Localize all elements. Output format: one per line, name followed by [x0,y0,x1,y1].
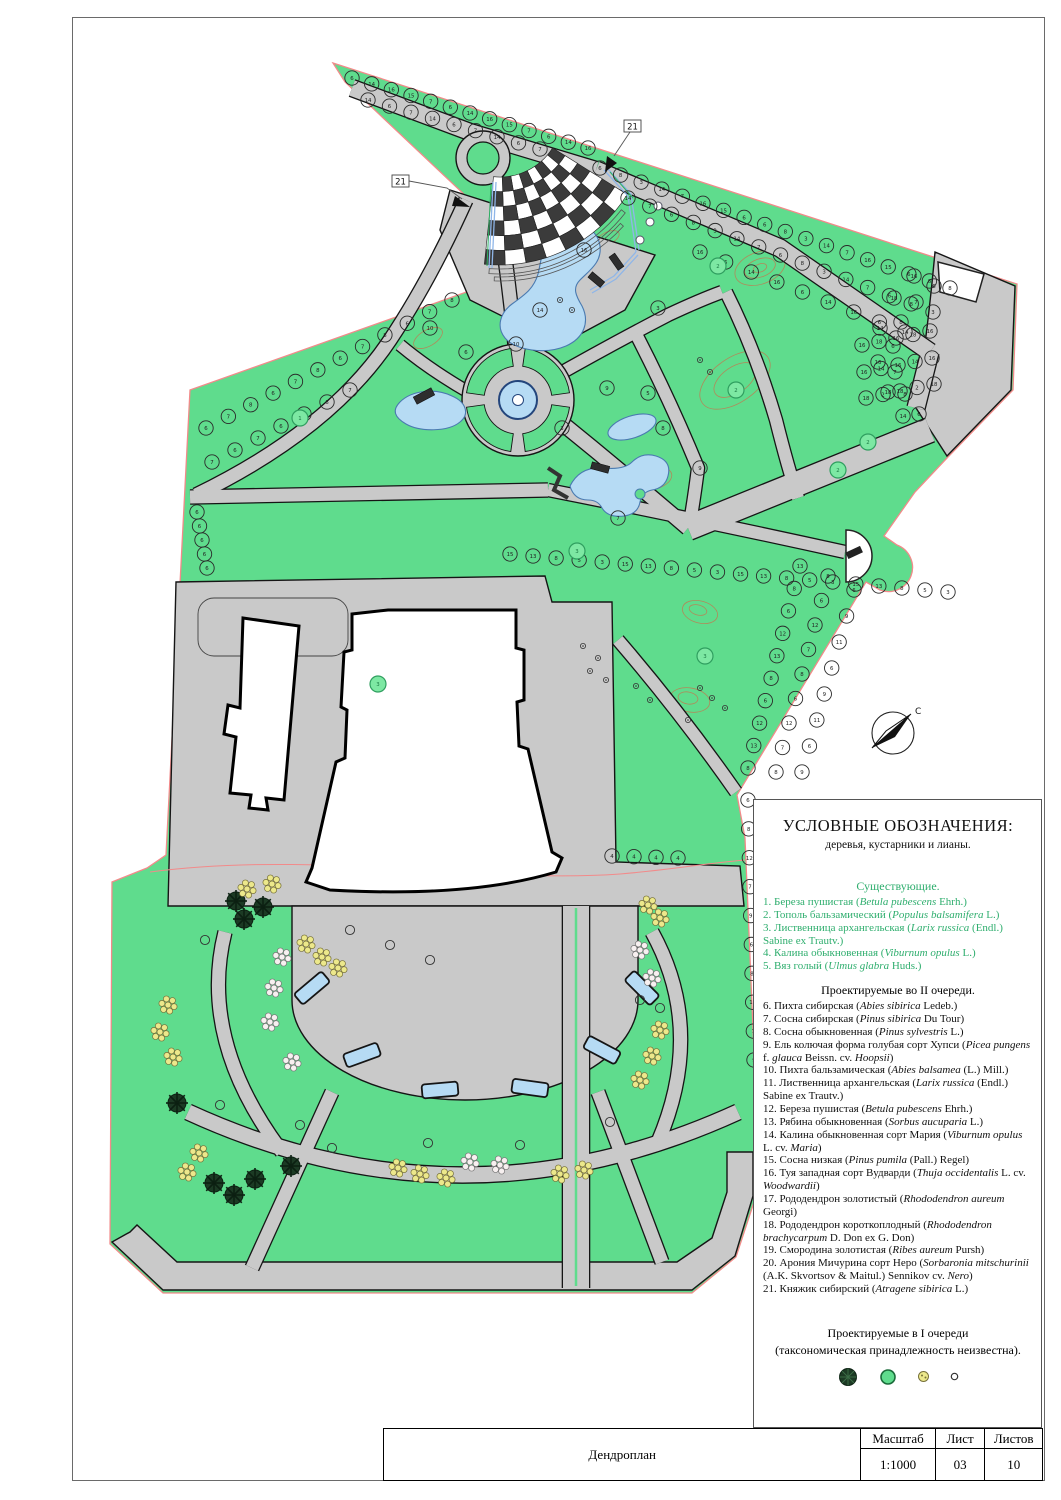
dark-shrub-symbol [223,1184,245,1206]
amphitheater-cell [503,205,518,221]
svg-text:7: 7 [681,194,684,200]
svg-text:14: 14 [842,277,849,283]
svg-text:3: 3 [376,682,379,688]
svg-text:4: 4 [632,855,636,861]
svg-text:16: 16 [895,363,902,369]
svg-text:8: 8 [774,770,778,776]
svg-text:10: 10 [513,342,520,348]
legend-item: 11. Лиственница архангельская (Larix rus… [763,1077,1033,1103]
legend-panel: УСЛОВНЫЕ ОБОЗНАЧЕНИЯ: деревья, кустарник… [753,799,1042,1428]
svg-text:8: 8 [909,302,913,308]
svg-text:8: 8 [784,230,788,236]
svg-text:6: 6 [830,666,834,672]
svg-text:7: 7 [648,204,651,210]
legend-item: 6. Пихта сибирская (Abies sibirica Ledeb… [763,1000,1033,1013]
svg-text:7: 7 [807,648,810,654]
svg-text:8: 8 [692,220,696,226]
svg-text:7: 7 [757,245,760,251]
legend-item: 5. Вяз голый (Ulmus glabra Huds.) [763,960,1033,973]
title-block: Дендроплан Масштаб 1:1000 Лист 03 Листов… [383,1428,1043,1481]
svg-text:18: 18 [876,340,883,346]
svg-text:11: 11 [813,718,820,724]
svg-text:3: 3 [560,426,563,432]
tree-symbol: 3 [941,585,955,599]
svg-text:16: 16 [861,370,868,376]
svg-text:7: 7 [866,286,869,292]
svg-text:5: 5 [693,568,696,574]
svg-text:8: 8 [619,173,623,179]
svg-text:12: 12 [746,856,753,862]
svg-text:2: 2 [836,468,839,474]
svg-text:3: 3 [713,229,716,235]
svg-text:3: 3 [931,310,934,316]
svg-text:14: 14 [365,98,372,104]
svg-text:15: 15 [885,265,892,271]
svg-text:6: 6 [233,448,237,454]
svg-text:6: 6 [932,284,936,290]
main-building [306,610,562,892]
svg-text:16: 16 [700,201,707,207]
svg-text:7: 7 [538,147,541,153]
svg-text:16: 16 [773,280,780,286]
svg-text:18: 18 [891,296,898,302]
svg-text:15: 15 [507,552,514,558]
tree-symbol: 2 [830,462,846,478]
svg-text:6: 6 [464,350,468,356]
svg-text:8: 8 [747,827,751,833]
sheet-column: Лист 03 [936,1429,986,1480]
svg-text:16: 16 [911,274,918,280]
svg-text:9: 9 [800,770,804,776]
fountain-jet [513,395,524,406]
svg-text:9: 9 [605,386,609,392]
svg-text:8: 8 [670,566,674,572]
legend-item: 12. Береза пушистая (Betula pubescens Eh… [763,1103,1033,1116]
svg-text:2: 2 [716,264,719,270]
svg-text:6: 6 [271,391,275,397]
scale-label: Масштаб [861,1429,934,1449]
svg-text:9: 9 [845,614,849,620]
svg-text:3: 3 [575,549,578,555]
svg-text:7: 7 [348,388,351,394]
svg-text:18: 18 [931,382,938,388]
sheet-label: Лист [936,1429,985,1449]
green-tree-symbol-icon [879,1368,897,1386]
svg-text:6: 6 [406,321,410,327]
svg-text:13: 13 [750,744,757,750]
svg-text:3: 3 [639,180,642,186]
svg-text:6: 6 [388,104,392,110]
svg-text:2: 2 [866,440,869,446]
svg-text:8: 8 [900,586,904,592]
svg-text:14: 14 [877,326,884,332]
svg-text:3: 3 [656,306,659,312]
callout-label: 21 [395,178,406,188]
tree-symbol: 6 [825,661,839,675]
svg-text:5: 5 [646,391,649,397]
svg-text:16: 16 [927,329,934,335]
svg-text:14: 14 [733,237,740,243]
legend-item: 8. Сосна обыкновенная (Pinus sylvestris … [763,1026,1033,1039]
svg-text:6: 6 [325,400,329,406]
svg-text:7: 7 [914,300,917,306]
svg-text:14: 14 [900,414,907,420]
svg-text:16: 16 [697,250,704,256]
tree-symbol: 9 [795,765,809,779]
svg-text:15: 15 [622,562,629,568]
legend-item: 4. Калина обыкновенная (Viburnum opulus … [763,947,1033,960]
legend-title: УСЛОВНЫЕ ОБОЗНАЧЕНИЯ: [763,816,1033,836]
tree-symbol: 12 [782,716,796,730]
legend-item: 21. Княжик сибирский (Atragene sibirica … [763,1283,1033,1296]
svg-text:8: 8 [899,320,903,326]
svg-text:16: 16 [859,343,866,349]
amphitheater-cell [492,177,503,192]
svg-text:4: 4 [610,854,614,860]
svg-text:7: 7 [428,310,431,316]
svg-text:8: 8 [746,766,750,772]
svg-text:14: 14 [912,360,919,366]
svg-text:6: 6 [449,105,453,111]
legend-item: 10. Пихта бальзамическая (Abies balsamea… [763,1064,1033,1077]
pond-island [635,489,645,499]
svg-text:8: 8 [661,426,665,432]
svg-text:8: 8 [769,676,773,682]
svg-text:16: 16 [864,258,871,264]
svg-text:8: 8 [450,298,454,304]
tree-symbol: 11 [832,635,846,649]
svg-text:3: 3 [946,590,949,596]
svg-text:6: 6 [452,123,456,129]
legend-section-existing: Существующие. [763,879,1033,894]
svg-text:3: 3 [703,654,706,660]
svg-text:9: 9 [698,466,702,472]
tree-symbol: 1 [292,410,308,426]
legend-item: 9. Ель колючая форма голубая сорт Хупси … [763,1039,1033,1065]
tree-symbol: 3 [370,676,386,692]
svg-text:7: 7 [845,251,848,257]
svg-text:2: 2 [734,388,737,394]
svg-text:7: 7 [527,129,530,135]
svg-text:4: 4 [654,855,658,861]
svg-text:6: 6 [917,412,921,418]
tree-symbol: 9 [817,687,831,701]
svg-text:6: 6 [670,212,674,218]
dark-shrub-symbol [203,1172,225,1194]
tree-symbol: 2 [860,434,876,450]
drawing-title: Дендроплан [384,1429,861,1480]
svg-text:6: 6 [204,426,208,432]
svg-text:12: 12 [779,631,786,637]
svg-text:14: 14 [625,196,632,202]
svg-text:13: 13 [760,574,767,580]
legend-item: 1. Береза пушистая (Betula pubescens Ehr… [763,896,1033,909]
legend-item: 15. Сосна низкая (Pinus pumila (Pall.) R… [763,1154,1033,1167]
svg-text:6: 6 [547,134,551,140]
svg-text:6: 6 [598,166,602,172]
tree-symbol: 2 [710,258,726,274]
scale-column: Масштаб 1:1000 [861,1429,935,1480]
svg-text:6: 6 [794,697,798,703]
svg-text:5: 5 [923,588,926,594]
svg-text:6: 6 [350,76,354,82]
svg-text:12: 12 [756,721,763,727]
legend-item: 7. Сосна сибирская (Pinus sibirica Du To… [763,1013,1033,1026]
svg-text:18: 18 [897,389,904,395]
svg-text:6: 6 [338,356,342,362]
svg-text:6: 6 [198,524,202,530]
svg-text:14: 14 [823,244,830,250]
svg-text:2: 2 [915,386,918,392]
svg-text:8: 8 [801,261,805,267]
svg-text:16: 16 [585,146,592,152]
svg-text:14: 14 [537,308,544,314]
svg-text:3: 3 [600,560,603,566]
svg-text:5: 5 [808,578,811,584]
svg-text:14: 14 [658,187,665,193]
svg-text:6: 6 [787,609,791,615]
svg-text:6: 6 [746,798,750,804]
legend-item: 16. Туя западная сорт Вудварди (Thuja oc… [763,1167,1033,1193]
svg-text:16: 16 [893,336,900,342]
svg-text:15: 15 [506,123,513,129]
tree-symbol: 11 [810,713,824,727]
svg-text:14: 14 [878,367,885,373]
svg-text:7: 7 [429,99,432,105]
svg-text:6: 6 [195,510,199,516]
svg-text:13: 13 [797,564,804,570]
svg-text:3: 3 [804,237,807,243]
svg-text:8: 8 [554,556,558,562]
svg-text:6: 6 [763,222,767,228]
scale-value: 1:1000 [861,1449,934,1480]
svg-text:14: 14 [467,111,474,117]
svg-text:6: 6 [205,566,209,572]
svg-text:3: 3 [822,269,825,275]
svg-text:6: 6 [764,699,768,705]
svg-text:14: 14 [565,140,572,146]
svg-text:16: 16 [850,310,857,316]
legend-proposed1-note: (таксономическая принадлежность неизвест… [763,1343,1033,1358]
svg-text:15: 15 [737,572,744,578]
legend-subtitle: деревья, кустарники и лианы. [763,839,1033,851]
svg-text:7: 7 [294,379,297,385]
amphitheater-cell [504,219,521,235]
legend-item: 2. Тополь бальзамический (Populus balsam… [763,909,1033,922]
roundabout-lawn [467,142,499,174]
svg-text:12: 12 [786,721,793,727]
svg-text:6: 6 [742,215,746,221]
sheet-number: 03 [936,1449,985,1480]
svg-text:14: 14 [825,300,832,306]
svg-text:8: 8 [948,286,952,292]
svg-text:3: 3 [716,570,719,576]
svg-text:6: 6 [820,599,824,605]
sheets-column: Листов 10 [985,1429,1042,1480]
amphitheater-cell [503,191,516,207]
dark-shrub-symbol [244,1168,266,1190]
svg-text:7: 7 [748,885,751,891]
dark-shrub-symbol [166,1092,188,1114]
amphitheater-cell [505,248,526,265]
svg-text:8: 8 [785,576,789,582]
svg-text:14: 14 [368,82,375,88]
yellow-shrub-symbol-icon [917,1370,930,1383]
legend-item: 17. Рододендрон золотистый (Rhododendron… [763,1193,1033,1219]
svg-text:6: 6 [852,588,856,594]
svg-text:13: 13 [645,564,652,570]
svg-text:13: 13 [773,654,780,660]
legend-section-proposed1: Проектируемые в I очереди [763,1326,1033,1341]
svg-text:4: 4 [676,856,680,862]
tree-symbol: 3 [697,648,713,664]
flower-bed [421,1081,458,1098]
svg-text:8: 8 [800,672,804,678]
legend-item: 3. Лиственница архангельская (Larix russ… [763,922,1033,948]
legend-section-proposed2: Проектируемые во II очереди. [763,983,1033,998]
small-plant-symbol-icon [950,1372,959,1381]
svg-text:12: 12 [812,623,819,629]
svg-text:6: 6 [200,538,204,544]
svg-text:6: 6 [203,552,207,558]
svg-text:7: 7 [409,110,412,116]
svg-text:18: 18 [885,390,892,396]
svg-text:7: 7 [474,129,477,135]
svg-text:8: 8 [793,586,797,592]
north-label: С [915,707,921,717]
svg-text:6: 6 [517,141,521,147]
svg-text:15: 15 [720,208,727,214]
svg-text:2: 2 [881,393,884,399]
legend-existing-list: 1. Береза пушистая (Betula pubescens Ehr… [763,896,1033,973]
svg-text:14: 14 [429,116,436,122]
svg-text:7: 7 [361,345,364,351]
svg-text:6: 6 [808,744,812,750]
svg-text:16: 16 [929,356,936,362]
dark-shrub-symbol [233,908,255,930]
dark-tree-symbol-icon [837,1366,859,1388]
legend-item: 19. Смородина золотистая (Ribes aureum P… [763,1244,1033,1257]
tree-symbol: 3 [569,543,585,559]
svg-text:16: 16 [581,248,588,254]
svg-text:7: 7 [781,746,784,752]
north-arrow: С [872,707,921,754]
svg-text:6: 6 [779,253,783,259]
tree-symbol: 7 [775,740,789,754]
amphitheater-cell [504,234,523,251]
dark-shrub-symbol [280,1155,302,1177]
svg-text:13: 13 [875,584,882,590]
legend-proposed2-list: 6. Пихта сибирская (Abies sibirica Ledeb… [763,1000,1033,1296]
svg-text:14: 14 [494,135,501,141]
svg-text:7: 7 [616,516,619,522]
svg-text:16: 16 [486,117,493,123]
svg-text:10: 10 [427,326,434,332]
svg-text:18: 18 [910,333,917,339]
svg-text:16: 16 [388,88,395,94]
tree-symbol: 5 [918,583,932,597]
svg-text:8: 8 [383,333,387,339]
dendroplan-sheet: { "colors":{ "green":"#5fdc8d","green-li… [0,0,1061,1500]
tree-symbol: 6 [802,739,816,753]
legend-item: 20. Арония Мичурина сорт Неро (Sorbaroni… [763,1257,1033,1283]
tree-symbol: 2 [728,382,744,398]
dark-shrub-symbol [252,896,274,918]
tree-symbol: 8 [769,765,783,779]
svg-text:14: 14 [748,270,755,276]
svg-text:6: 6 [279,424,283,430]
svg-text:7: 7 [210,460,213,466]
svg-text:8: 8 [316,368,320,374]
sheets-total: 10 [985,1449,1042,1480]
legend-item: 14. Калина обыкновенная сорт Мария (Vibu… [763,1129,1033,1155]
sheets-label: Листов [985,1429,1042,1449]
amphitheater-cell [487,220,504,235]
legend-symbol-row [763,1366,1033,1388]
legend-item: 13. Рябина обыкновенная (Sorbus aucupari… [763,1116,1033,1129]
svg-text:15: 15 [408,94,415,100]
svg-text:7: 7 [227,414,230,420]
svg-text:11: 11 [836,640,843,646]
svg-text:13: 13 [530,554,537,560]
svg-text:18: 18 [863,396,870,402]
callout-label: 21 [627,123,638,133]
svg-text:7: 7 [256,436,259,442]
svg-text:9: 9 [823,692,827,698]
svg-text:8: 8 [826,574,830,580]
svg-text:1: 1 [298,416,301,422]
svg-text:6: 6 [801,290,805,296]
legend-item: 18. Рододендрон короткоплодный (Rhododen… [763,1219,1033,1245]
svg-text:8: 8 [249,403,253,409]
